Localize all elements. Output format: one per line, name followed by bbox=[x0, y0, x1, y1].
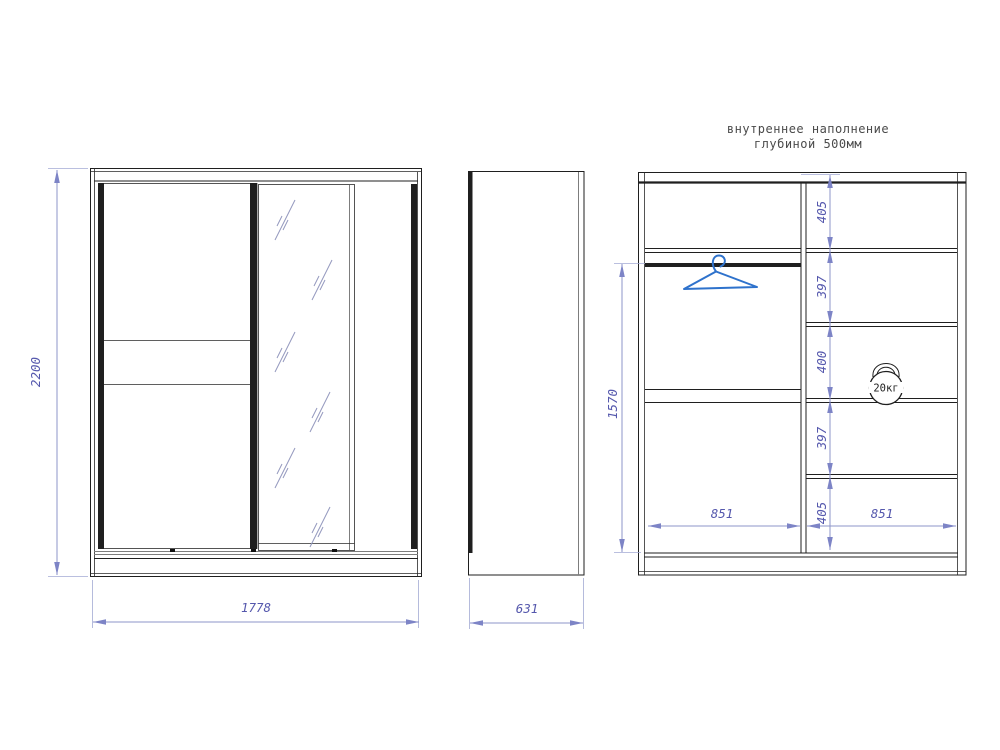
dim-shelf-2: 397 bbox=[814, 275, 829, 299]
mirror-door bbox=[259, 185, 355, 551]
dim-shelf-4: 397 bbox=[814, 426, 829, 450]
right-door-stile bbox=[411, 184, 417, 549]
dim-shelf-3: 400 bbox=[814, 351, 829, 374]
left-compartment bbox=[645, 249, 801, 403]
dim-left-width: 851 bbox=[711, 506, 734, 521]
drawing-canvas: 2200 1778 631 внутреннее наполнение глуб… bbox=[0, 0, 1000, 750]
bottom-track bbox=[94, 549, 418, 559]
dim-shelf-1: 405 bbox=[814, 201, 829, 224]
dim-front-width: 1778 bbox=[241, 600, 271, 615]
internal-view-dimensions: 1570 405 397 400 397 405 851 851 bbox=[605, 175, 956, 553]
hanger-icon bbox=[684, 256, 757, 290]
max-load-label: 20кг bbox=[873, 383, 898, 395]
left-door bbox=[98, 183, 257, 549]
dim-shelf-5: 405 bbox=[814, 502, 829, 525]
wardrobe-technical-drawing: 2200 1778 631 внутреннее наполнение глуб… bbox=[0, 0, 1000, 750]
annotation-line-2: глубиной 500мм bbox=[754, 137, 862, 151]
front-view-dimensions: 2200 1778 bbox=[28, 169, 419, 629]
mirror-hatch-marks bbox=[275, 200, 332, 547]
side-view-drawing bbox=[468, 172, 584, 576]
annotation-line-1: внутреннее наполнение bbox=[727, 122, 889, 136]
dim-right-width: 851 bbox=[871, 506, 894, 521]
internal-layout-drawing: 20кг bbox=[639, 173, 967, 576]
front-view-drawing bbox=[91, 169, 422, 577]
dim-front-height: 2200 bbox=[28, 357, 43, 387]
dim-side-depth: 631 bbox=[516, 601, 539, 616]
middle-divider bbox=[801, 183, 806, 553]
dim-hanging-height: 1570 bbox=[605, 389, 620, 419]
kettlebell-icon: 20кг bbox=[869, 364, 903, 405]
side-view-dimensions: 631 bbox=[470, 578, 584, 629]
